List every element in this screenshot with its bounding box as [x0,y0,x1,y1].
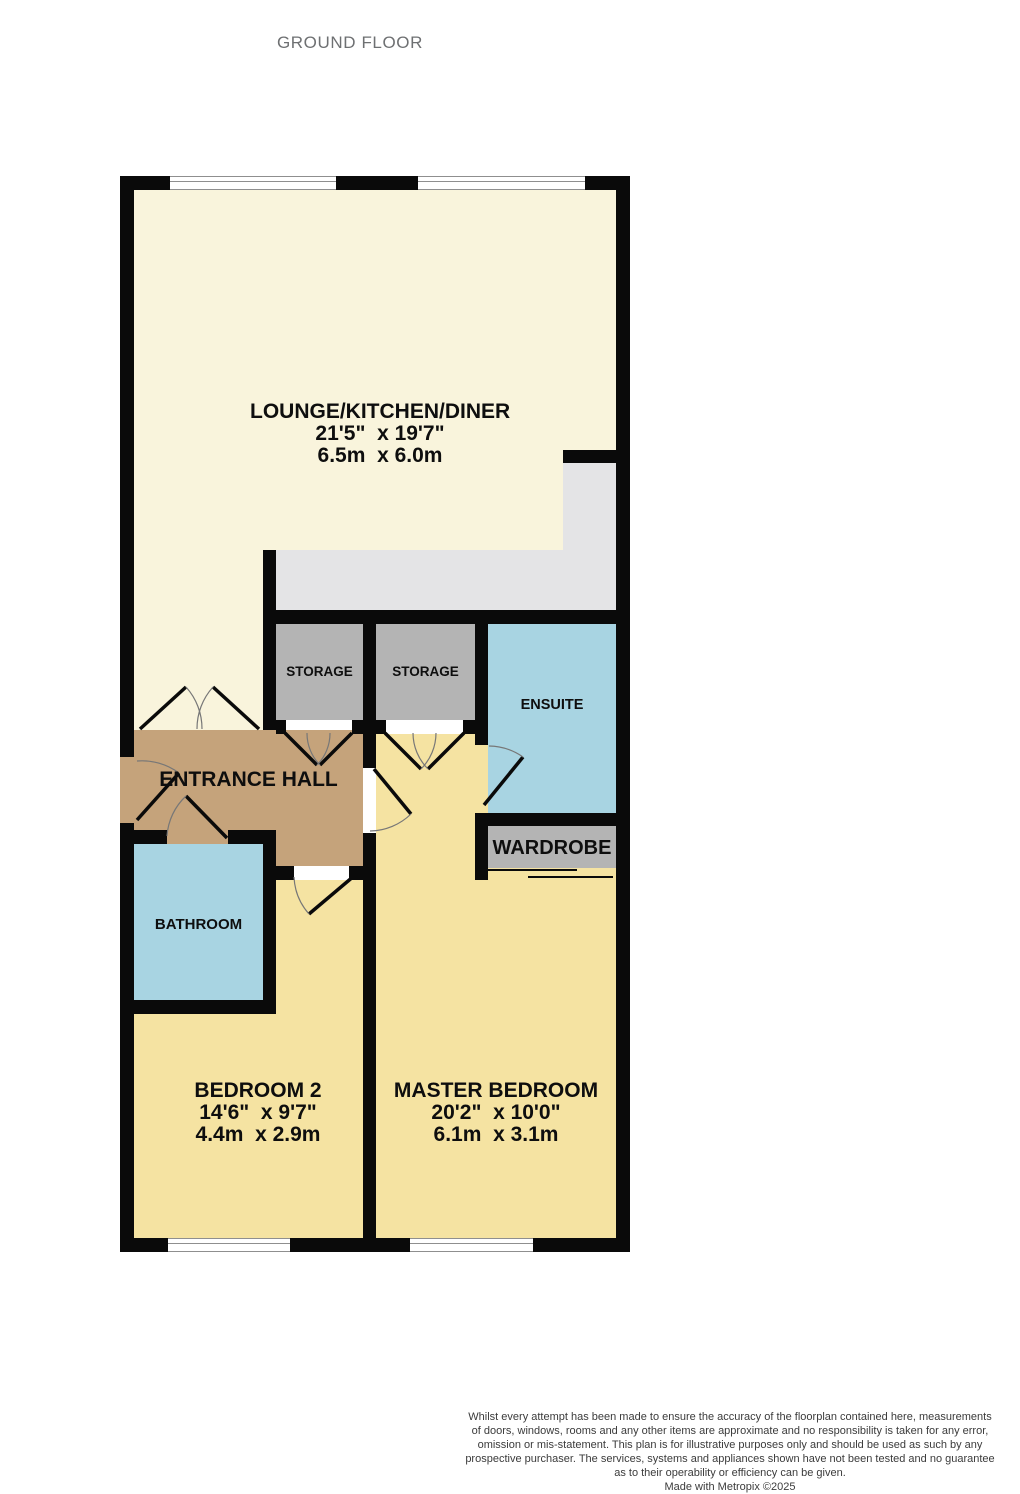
door-swings-layer [0,0,1020,1486]
bedroom2-imperial: 14'6" x 9'7" [143,1102,373,1124]
lounge-metric: 6.5m x 6.0m [250,445,510,467]
label-lounge: LOUNGE/KITCHEN/DINER 21'5" x 19'7" 6.5m … [250,401,510,467]
label-storage-1: STORAGE [263,664,376,679]
label-bedroom2: BEDROOM 2 14'6" x 9'7" 4.4m x 2.9m [143,1080,373,1146]
label-wardrobe: WARDROBE [488,837,616,860]
bedroom2-name: BEDROOM 2 [143,1080,373,1102]
lounge-imperial: 21'5" x 19'7" [250,423,510,445]
floorplan-canvas: GROUND FLOOR [0,0,1020,1486]
bedroom2-metric: 4.4m x 2.9m [143,1124,373,1146]
disclaimer-line: Whilst every attempt has been made to en… [438,1410,1020,1424]
label-entrance-hall: ENTRANCE HALL [134,768,363,792]
disclaimer-line: as to their operability or efficiency ca… [438,1466,1020,1480]
master-metric: 6.1m x 3.1m [376,1124,616,1146]
lounge-double-door [140,687,259,729]
master-bedroom-door [370,769,411,831]
bathroom-door [167,796,227,838]
lounge-double-door-arcs [186,687,213,729]
disclaimer-line: omission or mis-statement. This plan is … [438,1438,1020,1452]
disclaimer-line: of doors, windows, rooms and any other i… [438,1424,1020,1438]
disclaimer-line: prospective purchaser. The services, sys… [438,1452,1020,1466]
label-storage-2: STORAGE [369,664,482,679]
label-master-bedroom: MASTER BEDROOM 20'2" x 10'0" 6.1m x 3.1m [376,1080,616,1146]
disclaimer: Whilst every attempt has been made to en… [438,1410,1020,1494]
master-imperial: 20'2" x 10'0" [376,1102,616,1124]
metropix-credit: Made with Metropix ©2025 [438,1480,1020,1494]
ensuite-door [484,746,523,805]
lounge-name: LOUNGE/KITCHEN/DINER [250,401,510,423]
bedroom2-door [294,876,354,914]
storage2-double-door [385,733,464,769]
label-ensuite: ENSUITE [488,697,616,713]
label-bathroom: BATHROOM [134,916,263,933]
storage1-double-door [285,733,352,765]
master-name: MASTER BEDROOM [376,1080,616,1102]
